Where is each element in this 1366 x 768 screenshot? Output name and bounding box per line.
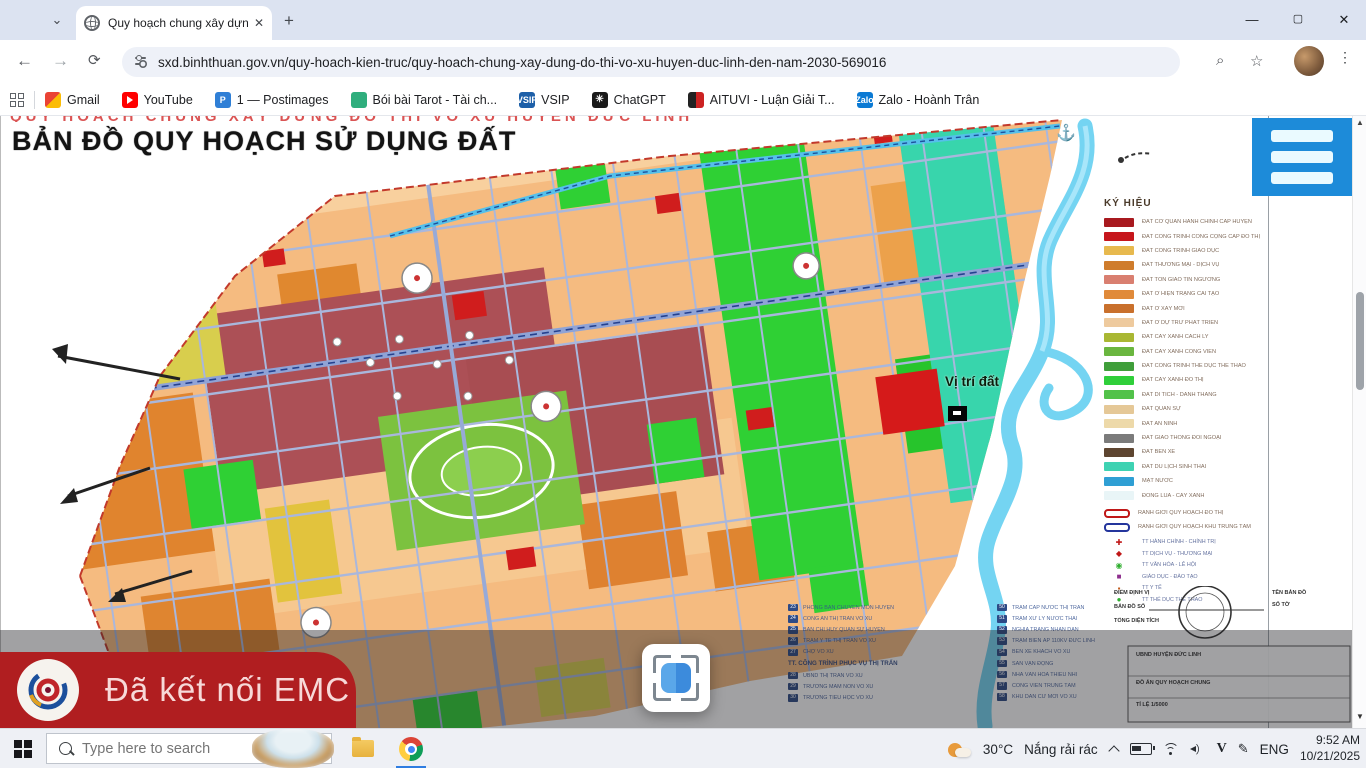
map-menu-button[interactable] bbox=[1252, 118, 1352, 196]
legend-label: GIÁO DỤC - ĐÀO TẠO bbox=[1142, 574, 1198, 580]
bookmark-item[interactable]: VSIP VSIP bbox=[519, 92, 570, 108]
language-indicator[interactable]: ENG bbox=[1260, 742, 1289, 757]
stamp-text: TỔNG DIỆN TÍCH bbox=[1114, 618, 1159, 624]
screen: ⌄ Quy hoạch chung xây dựng đô ✕ + — ▢ ✕ … bbox=[0, 0, 1366, 768]
legend-label: ĐẤT CÂY XANH CÔNG VIÊN bbox=[1142, 349, 1216, 355]
start-button[interactable] bbox=[14, 740, 32, 758]
legend-label: ĐẤT QUÂN SỰ bbox=[1142, 406, 1181, 412]
legend-item: ĐẤT CÂY XANH ĐÔ THỊ bbox=[1104, 373, 1264, 387]
legend-symbol-icon: ◆ bbox=[1104, 549, 1134, 558]
legend-item: ĐẤT CÂY XANH CÁCH LY bbox=[1104, 330, 1264, 344]
back-button[interactable]: ← bbox=[16, 51, 33, 71]
bookmark-label: Gmail bbox=[67, 93, 100, 107]
legend-label: RANH GIỚI QUY HOẠCH KHU TRUNG TÂM bbox=[1138, 524, 1251, 530]
emc-status-text: Đã kết nối EMC bbox=[105, 671, 350, 709]
legend-label: ĐẤT THƯƠNG MẠI - DỊCH VỤ bbox=[1142, 262, 1219, 268]
battery-icon[interactable] bbox=[1130, 743, 1152, 755]
legend-label: ĐẤT CÂY XANH ĐÔ THỊ bbox=[1142, 377, 1204, 383]
legend-symbol-icon: ■ bbox=[1104, 572, 1134, 581]
scrollbar-thumb[interactable] bbox=[1356, 292, 1364, 390]
legend-label: ĐẤT BẾN XE bbox=[1142, 449, 1175, 455]
apps-grid-icon[interactable] bbox=[10, 93, 24, 107]
legend-label: ĐỒNG LÚA - CÂY XANH bbox=[1142, 493, 1204, 499]
legend-symbol-icon: ◉ bbox=[1104, 561, 1134, 570]
bookmark-item[interactable]: YouTube bbox=[122, 92, 193, 108]
pen-icon[interactable]: ✎ bbox=[1238, 741, 1249, 757]
location-marker[interactable] bbox=[948, 406, 967, 421]
legend-item: ĐẤT DI TÍCH - DANH THẮNG bbox=[1104, 388, 1264, 402]
legend-item: ĐẤT CƠ QUAN HÀNH CHÍNH CẤP HUYỆN bbox=[1104, 215, 1264, 229]
legend-label: ĐẤT Ở DỰ TRỮ PHÁT TRIỂN bbox=[1142, 320, 1218, 326]
system-tray: 30°C Nắng rải rác V ✎ ENG 9:52 AM 10/21/… bbox=[946, 729, 1360, 768]
list-number: 23 bbox=[788, 604, 798, 612]
close-window-button[interactable]: ✕ bbox=[1330, 12, 1358, 28]
search-icon bbox=[59, 742, 72, 755]
legend-label: ĐẤT DI TÍCH - DANH THẮNG bbox=[1142, 392, 1217, 398]
legend-item: ĐẤT TÔN GIÁO TÍN NGƯỠNG bbox=[1104, 273, 1264, 287]
legend-item: ĐẤT QUÂN SỰ bbox=[1104, 402, 1264, 416]
legend-item: ĐẤT Ở XÂY MỚI bbox=[1104, 301, 1264, 315]
reload-button[interactable]: ⟳ bbox=[88, 51, 101, 69]
legend-swatch bbox=[1104, 246, 1134, 255]
list-number: 50 bbox=[997, 604, 1007, 612]
legend-item: ĐẤT CÔNG TRÌNH CÔNG CỘNG CẤP ĐÔ THỊ bbox=[1104, 229, 1264, 243]
legend-item: ĐẤT Ở HIỆN TRẠNG CẢI TẠO bbox=[1104, 287, 1264, 301]
legend-label: ĐẤT Ở XÂY MỚI bbox=[1142, 306, 1185, 312]
taskbar: 30°C Nắng rải rác V ✎ ENG 9:52 AM 10/21/… bbox=[0, 728, 1366, 768]
legend-label: ĐẤT CƠ QUAN HÀNH CHÍNH CẤP HUYỆN bbox=[1142, 219, 1252, 225]
legend-swatch bbox=[1104, 304, 1134, 313]
legend-swatch bbox=[1104, 477, 1134, 486]
tab-title: Quy hoạch chung xây dựng đô bbox=[108, 16, 248, 30]
legend-label: ĐẤT TÔN GIÁO TÍN NGƯỠNG bbox=[1142, 277, 1220, 283]
legend-swatch bbox=[1104, 362, 1134, 371]
map-title: BẢN ĐỒ QUY HOẠCH SỬ DỤNG ĐẤT bbox=[12, 126, 516, 157]
legend-swatch bbox=[1104, 462, 1134, 471]
zoom-icon[interactable]: ⌕ bbox=[1216, 52, 1224, 69]
legend-swatch bbox=[1104, 434, 1134, 443]
bookmark-label: ChatGPT bbox=[614, 93, 666, 107]
bookmark-favicon-icon bbox=[351, 92, 367, 108]
bookmark-star-icon[interactable]: ☆ bbox=[1250, 52, 1263, 70]
clock[interactable]: 9:52 AM 10/21/2025 bbox=[1300, 733, 1360, 764]
legend-swatch bbox=[1104, 290, 1134, 299]
legend-item: MẶT NƯỚC bbox=[1104, 474, 1264, 488]
emc-eye-logo-icon bbox=[17, 659, 79, 721]
legend-label: ĐẤT CÔNG TRÌNH CÔNG CỘNG CẤP ĐÔ THỊ bbox=[1142, 234, 1260, 240]
page-scrollbar[interactable]: ▲ ▼ bbox=[1352, 116, 1366, 728]
list-item: 23 PHÒNG BAN CHUYÊN MÔN HUYỆN bbox=[788, 602, 983, 613]
bookmark-favicon-icon: Zalo bbox=[857, 92, 873, 108]
list-label: TRẠM XỬ LÝ NƯỚC THẢI bbox=[1012, 616, 1077, 622]
list-label: PHÒNG BAN CHUYÊN MÔN HUYỆN bbox=[803, 605, 894, 611]
anchor-icon: ⚓ bbox=[1056, 123, 1076, 142]
legend-swatch bbox=[1104, 491, 1134, 500]
legend-swatch bbox=[1104, 347, 1134, 356]
legend-item: ĐẤT Ở DỰ TRỮ PHÁT TRIỂN bbox=[1104, 316, 1264, 330]
list-item: 24 CÔNG AN THỊ TRẤN VÕ XU bbox=[788, 613, 983, 624]
legend-swatch bbox=[1104, 275, 1134, 284]
legend-label: TT HÀNH CHÍNH - CHÍNH TRỊ bbox=[1142, 539, 1216, 545]
legend-swatch bbox=[1104, 448, 1134, 457]
profile-avatar[interactable] bbox=[1294, 46, 1324, 76]
bookmark-favicon-icon: P bbox=[215, 92, 231, 108]
maximize-button[interactable]: ▢ bbox=[1284, 12, 1312, 25]
legend-item: ĐẤT GIAO THÔNG ĐỐI NGOẠI bbox=[1104, 431, 1264, 445]
legend-swatch bbox=[1104, 390, 1134, 399]
clipped-map-header: QUY HOẠCH CHUNG XÂY DỰNG ĐÔ THỊ VÕ XU HU… bbox=[10, 116, 1110, 122]
legend-swatch bbox=[1104, 318, 1134, 327]
hamburger-bar bbox=[1271, 151, 1333, 163]
legend-item: ĐẤT DU LỊCH SINH THÁI bbox=[1104, 460, 1264, 474]
bookmark-label: 1 — Postimages bbox=[237, 93, 329, 107]
bookmark-item[interactable]: Bói bài Tarot - Tài ch... bbox=[351, 92, 498, 108]
minimize-button[interactable]: — bbox=[1238, 12, 1266, 27]
wifi-icon[interactable] bbox=[1163, 743, 1179, 755]
legend-symbol-item: ◉ TT VĂN HÓA - LỄ HỘI bbox=[1104, 560, 1264, 572]
legend-symbol-item: ◆ TT DỊCH VỤ - THƯƠNG MẠI bbox=[1104, 548, 1264, 560]
weather-icon[interactable] bbox=[946, 741, 972, 757]
list-number: 24 bbox=[788, 615, 798, 623]
screenshot-tool-button[interactable] bbox=[642, 644, 710, 712]
legend-label: ĐẤT DU LỊCH SINH THÁI bbox=[1142, 464, 1206, 470]
file-explorer-icon[interactable] bbox=[352, 740, 374, 757]
close-tab-icon[interactable]: ✕ bbox=[254, 16, 264, 30]
date: 10/21/2025 bbox=[1300, 749, 1360, 765]
browser-tab[interactable]: Quy hoạch chung xây dựng đô ✕ bbox=[76, 6, 272, 40]
bookmark-favicon-icon bbox=[45, 92, 61, 108]
legend-item: ĐẤT CÔNG TRÌNH THỂ DỤC THỂ THAO bbox=[1104, 359, 1264, 373]
stamp-text: SỐ TỜ bbox=[1272, 602, 1290, 608]
legend-label: ĐẤT Ở HIỆN TRẠNG CẢI TẠO bbox=[1142, 291, 1219, 297]
snip-core-icon bbox=[661, 663, 691, 693]
bookmark-item[interactable]: AITUVI - Luận Giải T... bbox=[688, 92, 835, 108]
bookmark-label: Zalo - Hoành Trân bbox=[879, 93, 980, 107]
legend-item: ĐẤT CÂY XANH CÔNG VIÊN bbox=[1104, 345, 1264, 359]
hamburger-bar bbox=[1271, 130, 1333, 142]
list-label: CÔNG AN THỊ TRẤN VÕ XU bbox=[803, 616, 872, 622]
map-legend: KÝ HIỆU ĐẤT CƠ QUAN HÀNH CHÍNH CẤP HUYỆN… bbox=[1104, 198, 1264, 606]
scroll-up-icon[interactable]: ▲ bbox=[1353, 118, 1366, 127]
legend-swatch bbox=[1104, 405, 1134, 414]
bookmark-favicon-icon bbox=[122, 92, 138, 108]
chrome-icon[interactable] bbox=[399, 737, 423, 761]
legend-title: KÝ HIỆU bbox=[1104, 198, 1264, 209]
legend-outline-swatch bbox=[1104, 523, 1130, 532]
legend-item: ĐỒNG LÚA - CÂY XANH bbox=[1104, 488, 1264, 502]
legend-outline-item: RANH GIỚI QUY HOẠCH KHU TRUNG TÂM bbox=[1104, 520, 1264, 534]
bookmark-label: VSIP bbox=[541, 93, 570, 107]
scroll-down-icon[interactable]: ▼ bbox=[1353, 712, 1366, 721]
legend-label: ĐẤT AN NINH bbox=[1142, 421, 1177, 427]
legend-label: ĐẤT CÂY XANH CÁCH LY bbox=[1142, 334, 1209, 340]
legend-item: ĐẤT AN NINH bbox=[1104, 416, 1264, 430]
url-text: sxd.binhthuan.gov.vn/quy-hoach-kien-truc… bbox=[158, 55, 886, 70]
legend-swatch bbox=[1104, 419, 1134, 428]
legend-swatch bbox=[1104, 261, 1134, 270]
legend-symbol-icon: ✚ bbox=[1104, 538, 1134, 547]
browser-menu-icon[interactable]: ⋮ bbox=[1338, 49, 1352, 66]
bookmark-item[interactable]: Zalo Zalo - Hoành Trân bbox=[857, 92, 980, 108]
site-settings-icon[interactable] bbox=[134, 55, 148, 69]
bookmark-item[interactable]: ChatGPT bbox=[592, 92, 666, 108]
legend-label: TT DỊCH VỤ - THƯƠNG MẠI bbox=[1142, 551, 1212, 557]
legend-symbol-item: ■ GIÁO DỤC - ĐÀO TẠO bbox=[1104, 571, 1264, 583]
legend-swatch bbox=[1104, 333, 1134, 342]
bookmark-favicon-icon bbox=[688, 92, 704, 108]
divider bbox=[34, 91, 35, 109]
legend-label: ĐẤT CÔNG TRÌNH THỂ DỤC THỂ THAO bbox=[1142, 363, 1246, 369]
stamp-text: BẢN ĐỒ SỐ bbox=[1114, 604, 1145, 610]
time: 9:52 AM bbox=[1300, 733, 1360, 749]
legend-label: MẶT NƯỚC bbox=[1142, 478, 1173, 484]
emc-banner[interactable]: Đã kết nối EMC bbox=[0, 652, 356, 728]
bookmarks-bar: Gmail YouTube P 1 — Postimages Bói bài T… bbox=[0, 84, 1366, 116]
bookmark-item[interactable]: Gmail bbox=[45, 92, 100, 108]
bookmark-favicon-icon bbox=[592, 92, 608, 108]
bookmark-favicon-icon: VSIP bbox=[519, 92, 535, 108]
tab-search-icon[interactable]: ⌄ bbox=[44, 10, 70, 32]
search-highlight-art[interactable] bbox=[252, 729, 334, 768]
legend-label: TT VĂN HÓA - LỄ HỘI bbox=[1142, 562, 1196, 568]
legend-label: RANH GIỚI QUY HOẠCH ĐÔ THỊ bbox=[1138, 510, 1223, 516]
temperature[interactable]: 30°C bbox=[983, 742, 1013, 757]
address-bar[interactable]: sxd.binhthuan.gov.vn/quy-hoach-kien-truc… bbox=[122, 47, 1180, 77]
bookmark-label: AITUVI - Luận Giải T... bbox=[710, 93, 835, 107]
volume-icon[interactable] bbox=[1190, 743, 1206, 755]
legend-item: ĐẤT CÔNG TRÌNH GIÁO DỤC bbox=[1104, 244, 1264, 258]
legend-label: ĐẤT CÔNG TRÌNH GIÁO DỤC bbox=[1142, 248, 1219, 254]
legend-swatch bbox=[1104, 376, 1134, 385]
globe-favicon-icon bbox=[84, 15, 100, 31]
list-number: 51 bbox=[997, 615, 1007, 623]
legend-outline-swatch bbox=[1104, 509, 1130, 518]
legend-swatch bbox=[1104, 232, 1134, 241]
stamp-text: TÊN BẢN ĐỒ bbox=[1272, 590, 1306, 596]
new-tab-button[interactable]: + bbox=[284, 11, 294, 31]
legend-label: ĐẤT GIAO THÔNG ĐỐI NGOẠI bbox=[1142, 435, 1221, 441]
legend-swatch bbox=[1104, 218, 1134, 227]
list-label: TRẠM CẤP NƯỚC THỊ TRẤN bbox=[1012, 605, 1084, 611]
legend-item: ĐẤT THƯƠNG MẠI - DỊCH VỤ bbox=[1104, 258, 1264, 272]
bookmark-label: Bói bài Tarot - Tài ch... bbox=[373, 93, 498, 107]
hamburger-bar bbox=[1271, 172, 1333, 184]
bookmark-label: YouTube bbox=[144, 93, 193, 107]
search-input[interactable] bbox=[80, 740, 254, 758]
tray-expand-icon[interactable] bbox=[1109, 744, 1119, 754]
legend-symbol-item: ✚ TT HÀNH CHÍNH - CHÍNH TRỊ bbox=[1104, 537, 1264, 549]
bookmark-item[interactable]: P 1 — Postimages bbox=[215, 92, 329, 108]
legend-outline-item: RANH GIỚI QUY HOẠCH ĐÔ THỊ bbox=[1104, 506, 1264, 520]
weather-text[interactable]: Nắng rải rác bbox=[1024, 742, 1098, 757]
forward-button[interactable]: → bbox=[52, 51, 69, 71]
stamp-text: ĐIỂM ĐỊNH VỊ bbox=[1114, 590, 1149, 596]
location-label: Vị trí đất bbox=[945, 374, 999, 389]
legend-item: ĐẤT BẾN XE bbox=[1104, 445, 1264, 459]
vietkey-icon[interactable]: V bbox=[1217, 741, 1227, 757]
